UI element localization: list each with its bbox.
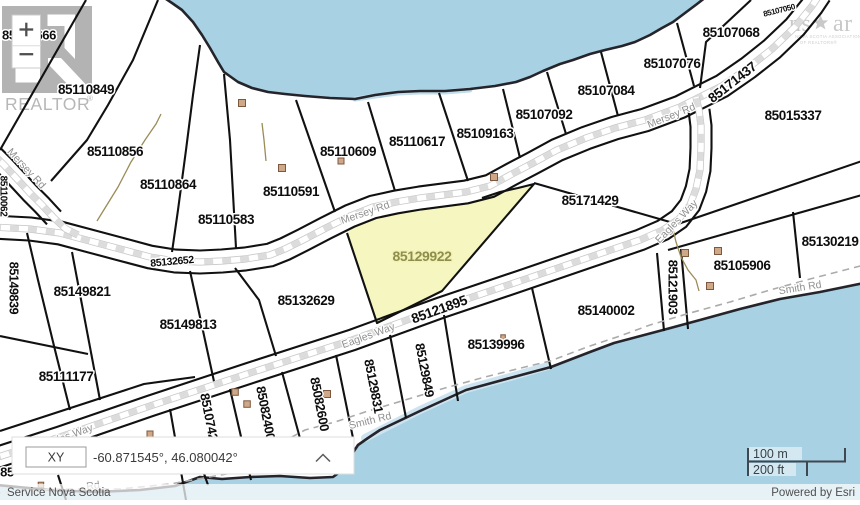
svg-text:85110583: 85110583 (198, 212, 255, 227)
svg-text:85110856: 85110856 (87, 144, 144, 159)
svg-text:85107092: 85107092 (516, 107, 573, 122)
svg-text:85149821: 85149821 (54, 284, 112, 299)
svg-text:85107076: 85107076 (644, 56, 702, 71)
svg-text:-60.871545°, 46.080042°: -60.871545°, 46.080042° (93, 450, 238, 465)
svg-text:85130219: 85130219 (802, 234, 859, 249)
svg-text:85110591: 85110591 (263, 184, 320, 199)
svg-text:85121903: 85121903 (665, 260, 680, 315)
svg-text:85149839: 85149839 (7, 262, 21, 315)
svg-text:85140002: 85140002 (578, 303, 635, 318)
svg-text:85132629: 85132629 (278, 293, 335, 308)
svg-text:85149813: 85149813 (160, 317, 218, 332)
svg-text:85110062: 85110062 (0, 176, 8, 218)
svg-text:100 m: 100 m (753, 447, 788, 461)
svg-text:XY: XY (48, 451, 65, 465)
svg-text:Service Nova Scotia: Service Nova Scotia (7, 487, 111, 499)
svg-text:85105906: 85105906 (714, 258, 772, 273)
svg-text:OF REALTORS®: OF REALTORS® (800, 40, 838, 45)
svg-text:85015337: 85015337 (765, 108, 822, 123)
svg-text:85110864: 85110864 (140, 177, 197, 192)
svg-text:200 ft: 200 ft (753, 463, 785, 477)
svg-text:85139996: 85139996 (468, 337, 526, 352)
svg-text:85171429: 85171429 (562, 193, 619, 208)
svg-text:85110849: 85110849 (58, 82, 114, 97)
svg-text:Powered by Esri: Powered by Esri (771, 487, 855, 499)
svg-text:85109163: 85109163 (457, 126, 515, 141)
svg-text:85107084: 85107084 (578, 83, 636, 98)
svg-text:85110617: 85110617 (389, 134, 445, 149)
svg-text:85110609: 85110609 (320, 144, 376, 159)
svg-text:85107068: 85107068 (703, 25, 761, 40)
svg-text:REALTOR: REALTOR (5, 94, 90, 114)
svg-text:85129922: 85129922 (392, 248, 452, 264)
svg-text:85111177: 85111177 (39, 369, 94, 384)
